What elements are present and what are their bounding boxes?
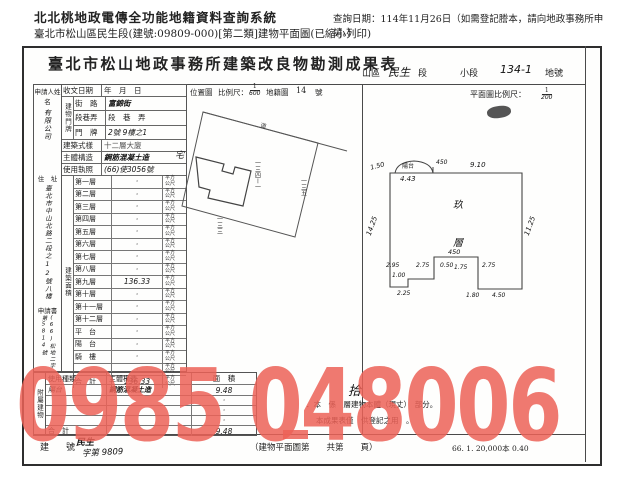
building-style-row: 建築式樣 十二層大廈 [62,140,186,152]
cadastral-map-no: 14 [296,86,306,95]
area-unit: 平方公尺 [163,264,177,276]
floor-label: 第七層 [74,251,112,263]
applicant-column: 申請人姓名 有限公司 住 址 臺北市中山北路二段之12號八樓 申請書 (66)松… [34,85,62,371]
floor-row: 第七層 · 平方公尺 [74,251,186,264]
dim-b2: 4.50 [492,292,505,299]
floor-row: 第九層 136.33 平方公尺 [74,276,186,289]
doorplate-group: 建物門牌 街 路 富錦街 段巷弄 段 巷 弄 門 牌 2號 9樓之1 [62,97,186,140]
position-map-label: 位置圖 [190,87,213,98]
floor-row: 第三層 · 平方公尺 [74,201,186,214]
floor-area-value: · [112,251,163,263]
lot-bottom-label: 一三三 [216,216,223,234]
balcony-label: 陽台 [402,161,414,170]
area-unit: 平方公尺 [163,314,177,326]
fields-and-floors: 收文日期 年 月 日 建物門牌 街 路 富錦街 段巷弄 段 巷 弄 門 牌 2號… [62,85,186,371]
floor-label: 第一層 [74,176,112,188]
scanned-cadastral-query-page: { "header": { "system_title": "北北桃地政電傳全功… [0,0,619,480]
plan-scale-den: 200 [541,95,552,101]
floor-label: 平 台 [74,326,112,338]
doorplate-group-label: 建物門牌 [62,97,74,139]
dim-l2: 1.00 [392,272,405,279]
street-value: 富錦街 [106,98,186,109]
floor-row: 第十一層 · 平方公尺 [74,301,186,314]
receive-date-value: 年 月 日 [102,85,186,96]
loc-lot-value: 134-1 [500,63,532,76]
loc-section-value: 民生 [388,64,410,80]
position-scale-label: 比例尺： [218,87,248,98]
dim-balcony: 4.43 [400,175,416,183]
floor-row: 第五層 · 平方公尺 [74,226,186,239]
room-char-2: 層 [453,234,463,249]
application-doc-label: 申請書 [38,305,58,315]
door-no-row: 門 牌 2號 9樓之1 [74,126,186,139]
loc-lot-label: 地號 [545,66,563,79]
structure-value: 鋼筋混凝土造 [102,152,186,163]
dim-b1: 1.80 [466,292,479,299]
room-char-1: 玖 [453,196,463,211]
dim-l1: 2.95 [386,262,399,269]
receive-date-row: 收文日期 年 月 日 [62,85,186,97]
floor-area-value: · [112,326,163,338]
dim-n3: 1.75 [454,264,467,271]
loc-section-label: 段 [418,66,427,79]
applicant-name-handwritten: 有限公司 [43,109,53,171]
floor-label: 第五層 [74,226,112,238]
lane-row: 段巷弄 段 巷 弄 [74,111,186,125]
applicant-address-label: 住 址 [38,173,58,183]
area-unit: 平方公尺 [163,289,177,301]
area-unit: 平方公尺 [163,326,177,338]
floor-label: 第十層 [74,289,112,301]
plan-scale-fraction: 1200 [541,88,552,101]
system-title: 北北桃地政電傳全功能地籍資料查詢系統 [34,7,277,26]
floor-row: 第一層 · 平方公尺 [74,176,186,189]
floor-label: 第九層 [74,276,112,288]
floor-label: 第二層 [74,189,112,201]
building-style-value: 十二層大廈 [102,140,186,151]
license-value: (66)使3056號 [102,164,186,175]
door-no-value: 2號 9樓之1 [106,127,186,138]
lot-main-label: 一三四ー一 [254,160,261,190]
position-scale-fraction: 1600 [249,84,260,97]
area-unit: 平方公尺 [163,276,177,288]
floor-area-value: · [112,289,163,301]
applicant-address-handwritten: 臺北市中山北路二段之12號八樓 [43,185,53,303]
plan-scale-label: 平面圖比例尺： [470,89,526,100]
street-row: 街 路 富錦街 [74,97,186,111]
floor-label: 第十二層 [74,314,112,326]
floor-area-value: · [112,201,163,213]
floor-area-value: · [112,214,163,226]
dim-n4: 2.75 [482,262,495,269]
position-scale-den: 600 [249,91,260,97]
floor-label: 第四層 [74,214,112,226]
floor-area-value: · [112,189,163,201]
license-label: 使用執照 [62,164,102,175]
applicant-label: 申請人姓名 [34,86,61,106]
watermark-dash-block [283,430,308,439]
cadastral-map-label: 地籍圖 [266,87,289,98]
loc-district-label: 山區 [362,66,380,79]
dim-top-mid: 450 [436,159,447,166]
dim-l3: 2.25 [397,290,410,297]
floor-plan-wrap: 陽台 4.43 1.50 450 9.10 14.25 11.25 450 2.… [370,150,585,305]
floor-row: 平 台 · 平方公尺 [74,326,186,339]
watermark-phone-number: 0985 048006 [16,356,484,456]
floor-area-value: · [112,226,163,238]
lane-label: 段巷弄 [74,111,106,124]
cadastral-no-suffix: 號 [315,87,323,98]
floor-label: 第八層 [74,264,112,276]
street-label: 街 路 [74,97,106,110]
floor-area-value: · [112,176,163,188]
query-date-line: 查詢日期：114年11月26日（如需登記謄本，請向地政事務所申請。） [333,11,619,39]
floor-label: 第三層 [74,201,112,213]
site-mark-handwritten: 宅 [175,150,185,161]
area-unit: 平方公尺 [163,301,177,313]
lot-right-label: 一三五 [300,178,307,196]
floor-area-value: · [112,239,163,251]
floor-area-value: · [112,264,163,276]
building-style-label: 建築式樣 [62,140,102,151]
structure-row: 主體構造 鋼筋混凝土造 [62,152,186,164]
document-subtitle: 臺北市松山區民生段(建號:09809-000)[第二類]建物平面圖(已縮小列印) [34,26,371,41]
lane-value: 段 巷 弄 [106,112,186,123]
survey-main-table: 申請人姓名 有限公司 住 址 臺北市中山北路二段之12號八樓 申請書 (66)松… [33,84,187,372]
dim-top: 9.10 [470,161,486,169]
floor-area-value: · [112,314,163,326]
location-map-sketch: 道 一三四ー一 一三五 一三三 宅 [175,100,375,260]
dim-n2: 0.50 [440,262,453,269]
receive-date-label: 收文日期 [62,85,102,96]
floor-area-value: 136.33 [112,276,163,288]
loc-small-section-label: 小段 [460,66,478,79]
door-no-label: 門 牌 [74,126,106,139]
floor-plan-sketch [370,150,585,305]
rule-right-vertical [585,46,586,462]
structure-label: 主體構造 [62,152,102,163]
floor-label: 第六層 [74,239,112,251]
form-title: 臺北市松山地政事務所建築改良物勘測成果表 [48,53,398,74]
floor-label: 第十一層 [74,301,112,313]
dim-notch-top: 450 [448,248,460,256]
dim-n1: 2.75 [416,262,429,269]
floor-area-value: · [112,301,163,313]
